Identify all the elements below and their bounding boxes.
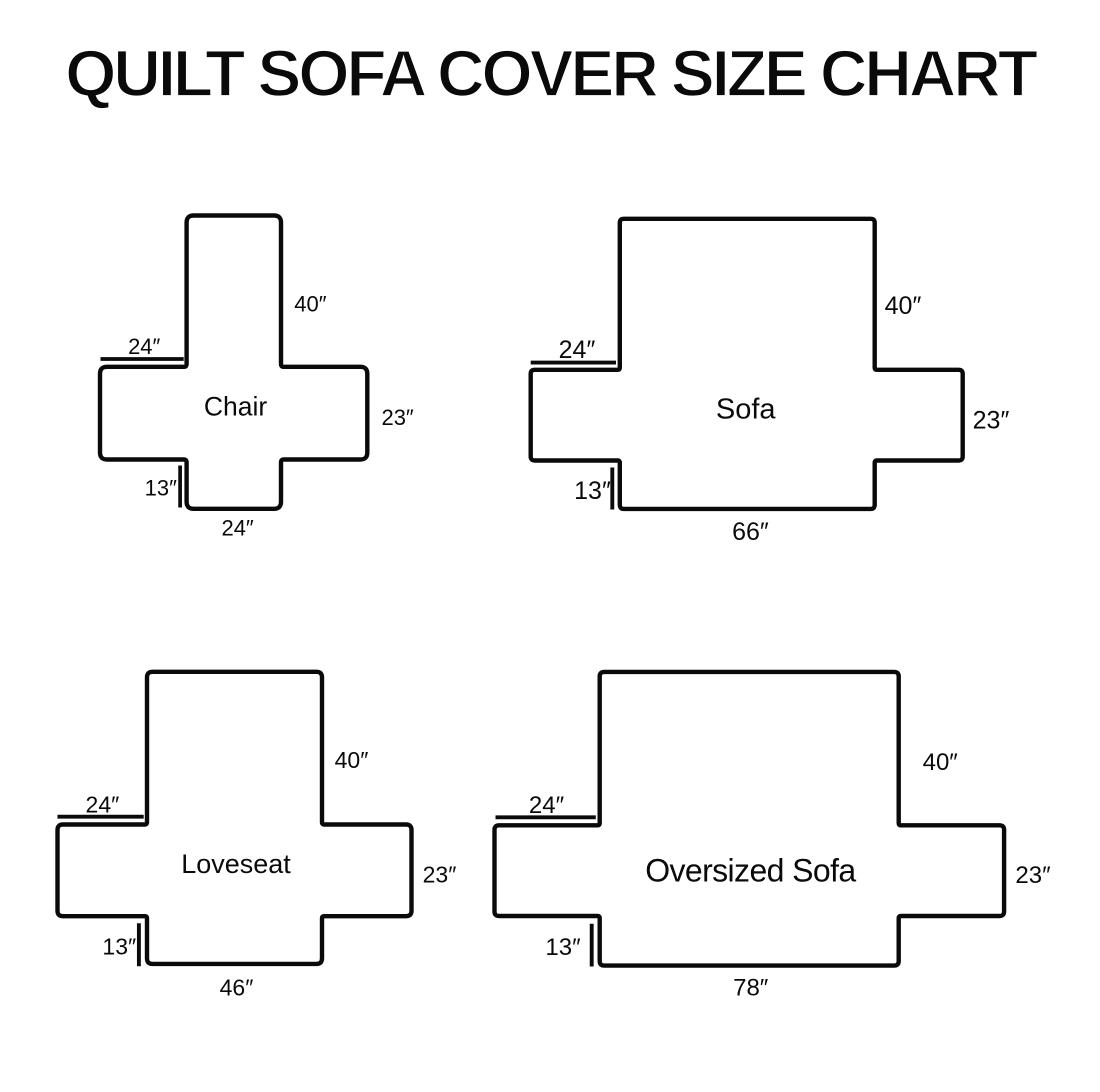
svg-text:Oversized Sofa: Oversized Sofa xyxy=(645,853,856,889)
svg-text:40″: 40″ xyxy=(335,747,369,773)
svg-text:23″: 23″ xyxy=(973,407,1010,435)
svg-text:Sofa: Sofa xyxy=(716,394,777,426)
svg-text:66″: 66″ xyxy=(732,518,769,546)
svg-text:QUILT SOFA COVER SIZE CHART: QUILT SOFA COVER SIZE CHART xyxy=(65,36,1038,110)
svg-text:24″: 24″ xyxy=(221,516,253,541)
svg-text:78″: 78″ xyxy=(733,975,769,1002)
svg-text:40″: 40″ xyxy=(294,292,326,317)
svg-text:46″: 46″ xyxy=(220,975,254,1001)
svg-text:23″: 23″ xyxy=(423,862,457,888)
svg-text:24″: 24″ xyxy=(128,334,160,359)
svg-text:13″: 13″ xyxy=(545,934,581,961)
svg-text:23″: 23″ xyxy=(381,405,413,430)
svg-text:13″: 13″ xyxy=(102,934,136,960)
svg-text:Loveseat: Loveseat xyxy=(181,849,291,879)
svg-text:24″: 24″ xyxy=(529,792,565,819)
svg-text:13″: 13″ xyxy=(574,477,611,505)
svg-text:23″: 23″ xyxy=(1015,862,1051,889)
svg-text:40″: 40″ xyxy=(885,292,922,320)
svg-text:24″: 24″ xyxy=(86,791,120,817)
svg-text:24″: 24″ xyxy=(559,336,596,364)
svg-text:40″: 40″ xyxy=(923,749,959,776)
svg-text:13″: 13″ xyxy=(145,476,177,501)
svg-text:Chair: Chair xyxy=(204,392,268,422)
